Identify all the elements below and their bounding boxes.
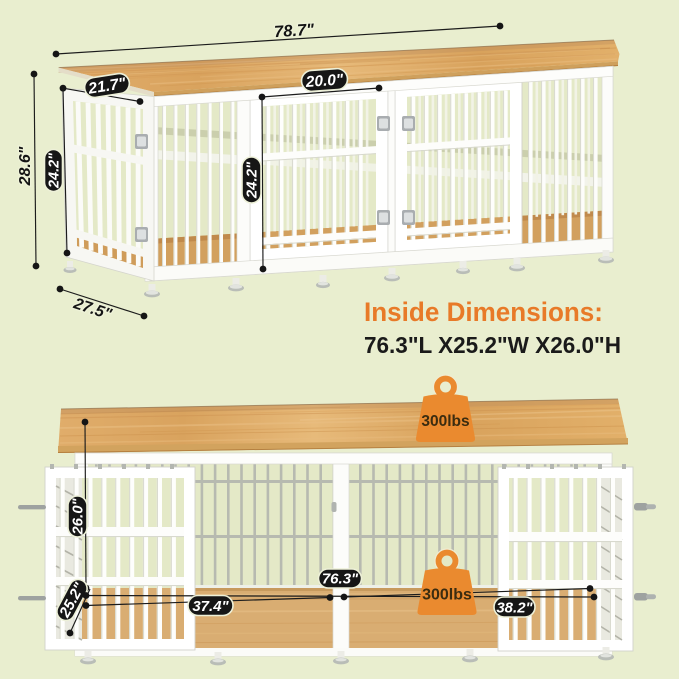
svg-text:20.0": 20.0"	[304, 71, 344, 91]
svg-text:37.4": 37.4"	[192, 598, 229, 615]
svg-text:28.6": 28.6"	[17, 146, 34, 186]
svg-text:24.2": 24.2"	[244, 161, 261, 199]
svg-text:26.0": 26.0"	[70, 497, 87, 535]
svg-text:Inside Dimensions:: Inside Dimensions:	[364, 297, 603, 327]
svg-text:24.2": 24.2"	[46, 152, 62, 189]
svg-text:38.2": 38.2"	[496, 599, 533, 616]
svg-text:300lbs: 300lbs	[422, 587, 472, 604]
svg-text:76.3"L X25.2"W X26.0"H: 76.3"L X25.2"W X26.0"H	[364, 332, 621, 358]
svg-text:78.7": 78.7"	[274, 21, 315, 41]
svg-text:76.3": 76.3"	[322, 571, 359, 588]
svg-text:300lbs: 300lbs	[421, 413, 469, 430]
